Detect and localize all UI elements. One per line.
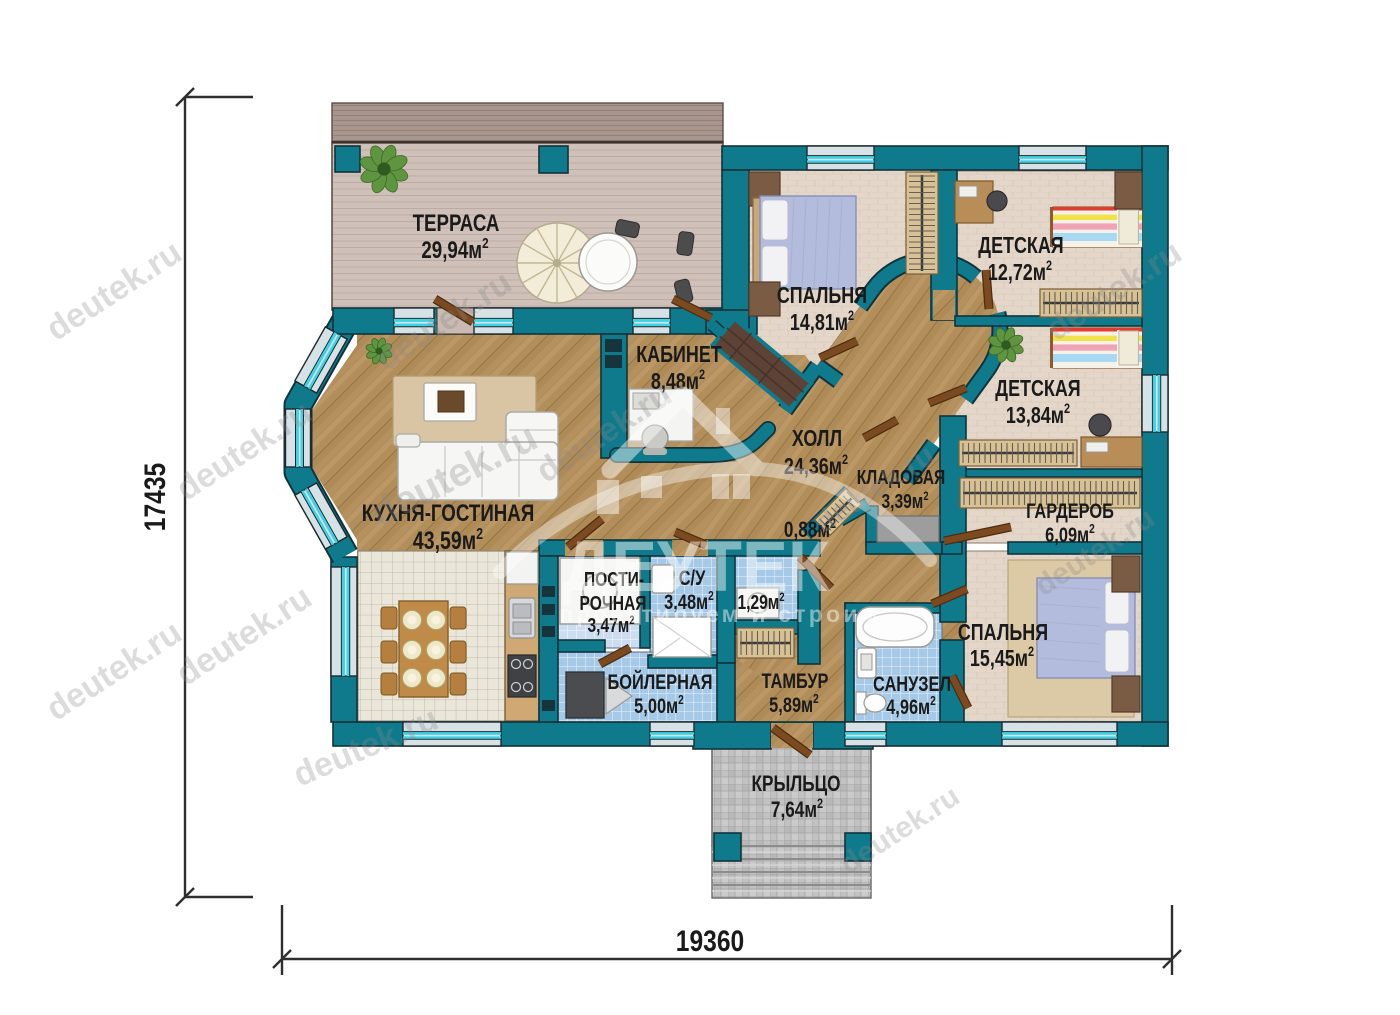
svg-text:4,96м2: 4,96м2: [886, 694, 936, 719]
svg-text:13,84м2: 13,84м2: [1006, 401, 1070, 429]
svg-text:ДЕУТЕК: ДЕУТЕК: [562, 527, 830, 606]
svg-text:САНУЗЕЛ: САНУЗЕЛ: [873, 672, 951, 695]
svg-text:ТЕРРАСА: ТЕРРАСА: [413, 210, 500, 237]
svg-text:14,81м2: 14,81м2: [790, 308, 854, 336]
svg-text:ХОЛЛ: ХОЛЛ: [792, 426, 842, 452]
svg-text:ДЕТСКАЯ: ДЕТСКАЯ: [995, 376, 1080, 402]
svg-text:СПАЛЬНЯ: СПАЛЬНЯ: [777, 283, 867, 309]
svg-text:проектируем и строим: проектируем и строим: [559, 601, 881, 627]
svg-text:12,72м2: 12,72м2: [988, 258, 1052, 286]
svg-text:ТАМБУР: ТАМБУР: [762, 669, 829, 692]
svg-text:СПАЛЬНЯ: СПАЛЬНЯ: [958, 620, 1048, 646]
svg-text:КРЫЛЬЦО: КРЫЛЬЦО: [752, 772, 841, 797]
svg-text:17435: 17435: [138, 463, 172, 531]
svg-text:КАБИНЕТ: КАБИНЕТ: [636, 342, 722, 368]
svg-text:43,59м2: 43,59м2: [413, 526, 483, 555]
svg-text:7,64м2: 7,64м2: [771, 796, 823, 823]
svg-text:5,00м2: 5,00м2: [634, 693, 684, 718]
svg-text:29,94м2: 29,94м2: [421, 235, 488, 264]
svg-text:БОЙЛЕРНАЯ: БОЙЛЕРНАЯ: [607, 670, 712, 693]
svg-text:ГАРДЕРОБ: ГАРДЕРОБ: [1026, 499, 1114, 522]
svg-text:15,45м2: 15,45м2: [970, 644, 1034, 672]
svg-text:5,89м2: 5,89м2: [769, 692, 819, 717]
svg-text:ДЕТСКАЯ: ДЕТСКАЯ: [978, 233, 1063, 259]
svg-text:19360: 19360: [676, 924, 744, 958]
